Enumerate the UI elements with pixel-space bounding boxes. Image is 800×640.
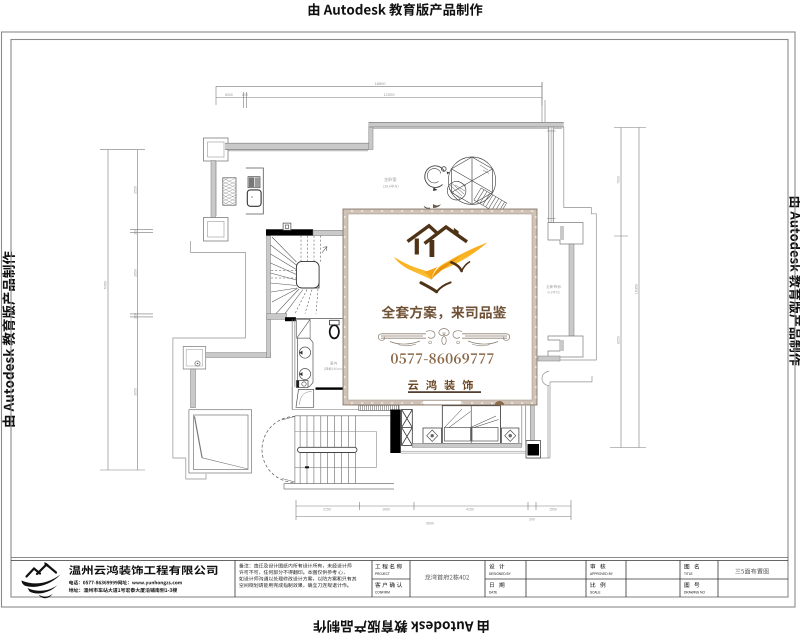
svg-text:200: 200 bbox=[529, 518, 535, 522]
svg-text:TITLE: TITLE bbox=[684, 572, 693, 576]
svg-text:18800: 18800 bbox=[374, 81, 386, 86]
svg-text:9600: 9600 bbox=[426, 522, 434, 526]
svg-text:12000: 12000 bbox=[383, 92, 395, 97]
svg-text:200: 200 bbox=[134, 313, 138, 319]
svg-text:1550: 1550 bbox=[549, 508, 557, 512]
svg-text:PROJECT: PROJECT bbox=[375, 572, 390, 576]
svg-text:16350: 16350 bbox=[635, 284, 639, 295]
svg-text:2550: 2550 bbox=[134, 186, 138, 194]
svg-text:CONFIRM: CONFIRM bbox=[375, 591, 390, 595]
svg-text:2150: 2150 bbox=[323, 508, 331, 512]
svg-text:DATE: DATE bbox=[489, 591, 497, 595]
svg-text:5450: 5450 bbox=[104, 281, 108, 289]
svg-text:3050: 3050 bbox=[134, 388, 138, 396]
svg-text:SCALE: SCALE bbox=[590, 591, 600, 595]
svg-text:200: 200 bbox=[134, 229, 138, 235]
svg-text:4150: 4150 bbox=[466, 508, 474, 512]
svg-text:DRAWING NO: DRAWING NO bbox=[684, 591, 705, 595]
svg-text:8250: 8250 bbox=[617, 336, 621, 344]
svg-text:7600: 7600 bbox=[617, 176, 621, 184]
svg-text:6000: 6000 bbox=[225, 93, 233, 97]
svg-text:2850: 2850 bbox=[134, 269, 138, 277]
svg-text:APPROVED BY: APPROVED BY bbox=[590, 572, 614, 576]
svg-text:800: 800 bbox=[242, 93, 248, 97]
svg-text:1650: 1650 bbox=[382, 508, 390, 512]
svg-text:DESIGNED BY: DESIGNED BY bbox=[489, 572, 512, 576]
